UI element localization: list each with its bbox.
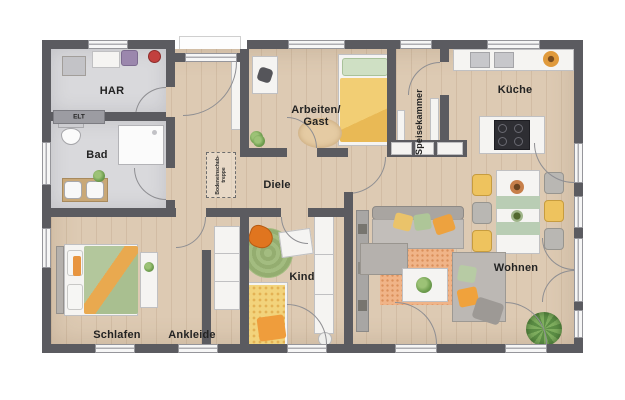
room-label-bad: Bad	[86, 149, 107, 161]
table-runner	[496, 196, 540, 209]
shower-drain	[152, 130, 157, 135]
dining-chair-yellow	[472, 174, 492, 196]
wardrobe	[214, 226, 240, 310]
kind-bed-throw	[256, 314, 286, 342]
dining-chair-yellow	[544, 200, 564, 222]
centerpiece	[511, 210, 523, 222]
laundry-basket	[121, 50, 138, 66]
wall-left	[42, 40, 51, 353]
shower	[118, 125, 164, 165]
cooktop-burner	[498, 137, 507, 146]
kind-shelf-divider	[314, 294, 334, 295]
pillow-green	[413, 213, 432, 231]
bed-headboard	[56, 246, 64, 314]
room-label-arbeiten-gast: Arbeiten/ Gast	[291, 104, 340, 128]
wardrobe-divider	[214, 253, 240, 254]
wardrobe-divider	[214, 281, 240, 282]
wohnen-french-door-bar	[574, 238, 583, 302]
har-cabinet	[62, 56, 86, 76]
wall-ankleide-kind	[240, 217, 249, 344]
cooktop-burner	[498, 124, 507, 133]
washing-machine	[92, 51, 120, 68]
wohnen-shelf-item	[358, 224, 367, 234]
dining-chair-gray	[472, 202, 492, 224]
chaise-pillow-green	[457, 265, 478, 284]
window-kueche	[487, 40, 540, 49]
flower-bowl	[543, 51, 559, 67]
kind-shelf	[314, 214, 334, 334]
room-label-har: HAR	[100, 85, 124, 97]
wohnen-shelf-item	[358, 300, 367, 311]
guest-bed-blanket	[340, 78, 390, 142]
diele-plant	[253, 135, 265, 147]
kind-terrace-door-bar	[287, 344, 327, 353]
sink	[86, 181, 104, 199]
wall-entry-header-l	[175, 53, 185, 62]
room-label-kueche: Küche	[498, 84, 533, 96]
window-ankleide	[178, 344, 218, 353]
window-wohnen-right-bottom	[574, 310, 583, 338]
wall-kind-wohnen	[344, 192, 353, 344]
room-label-ankleide: Ankleide	[168, 329, 215, 341]
cooktop-burner	[514, 137, 523, 146]
attic-stairs-label: Bodeneinschub- treppe	[215, 154, 227, 196]
window-arbeiten	[288, 40, 345, 49]
wall-ankleide-top	[206, 208, 281, 217]
kueche-side-door-bar	[574, 143, 583, 183]
wall-har-right-b	[166, 117, 175, 168]
sink	[64, 181, 82, 199]
wohnen-terrace-door1-bar	[395, 344, 437, 353]
bed-blanket	[84, 246, 138, 314]
wall-entry-stub	[166, 40, 175, 62]
builtin-cupboard	[391, 142, 412, 155]
table-runner	[496, 222, 540, 235]
window-har	[88, 40, 128, 49]
room-label-wohnen: Wohnen	[494, 262, 538, 274]
cooktop-burner	[514, 124, 523, 133]
wall-har-right-a	[166, 62, 175, 87]
window-wohnen-right-top	[574, 196, 583, 228]
bed-throw-orange	[73, 256, 81, 276]
room-label-speisekammer: Speisekammer	[411, 82, 427, 162]
kitchen-sink	[494, 52, 514, 68]
room-label-schlafen: Schlafen	[93, 329, 140, 341]
wall-arbeiten-bottom-a	[240, 148, 287, 157]
entry-door-bar	[185, 53, 237, 62]
floor-plan: Bodeneinschub- treppe	[0, 0, 625, 400]
schlafen-plant	[144, 262, 154, 272]
room-label-kind: Kind	[289, 271, 314, 283]
sofa-corner	[360, 243, 408, 275]
centerpiece	[510, 180, 524, 194]
bed-pillow	[67, 284, 83, 310]
schlafen-dresser	[140, 252, 158, 308]
wall-entry-arbeiten	[240, 49, 249, 148]
window-schlafen-bottom	[95, 344, 135, 353]
room-label-elt: ELT	[73, 114, 85, 121]
wall-arbeiten-bottom-b	[317, 148, 348, 157]
bad-plant	[93, 170, 105, 182]
wall-speise-kueche-a	[440, 49, 449, 62]
builtin-cupboard	[437, 142, 463, 155]
room-label-diele: Diele	[263, 179, 290, 191]
window-schlafen-left	[42, 228, 51, 268]
wall-speise-kueche-b	[440, 95, 449, 140]
wall-arbeiten-speise	[387, 49, 396, 148]
kitchen-sink	[470, 52, 490, 68]
window-speisekammer	[400, 40, 432, 49]
kind-shelf-divider	[314, 254, 334, 255]
red-bowl	[148, 50, 161, 63]
window-bad	[42, 142, 51, 185]
dining-chair-yellow	[472, 230, 492, 252]
wohnen-terrace-door2-bar	[505, 344, 547, 353]
guest-bed-pillow	[342, 58, 388, 76]
coffee-table-plant	[416, 277, 432, 293]
wall-schlafen-top	[51, 208, 176, 217]
